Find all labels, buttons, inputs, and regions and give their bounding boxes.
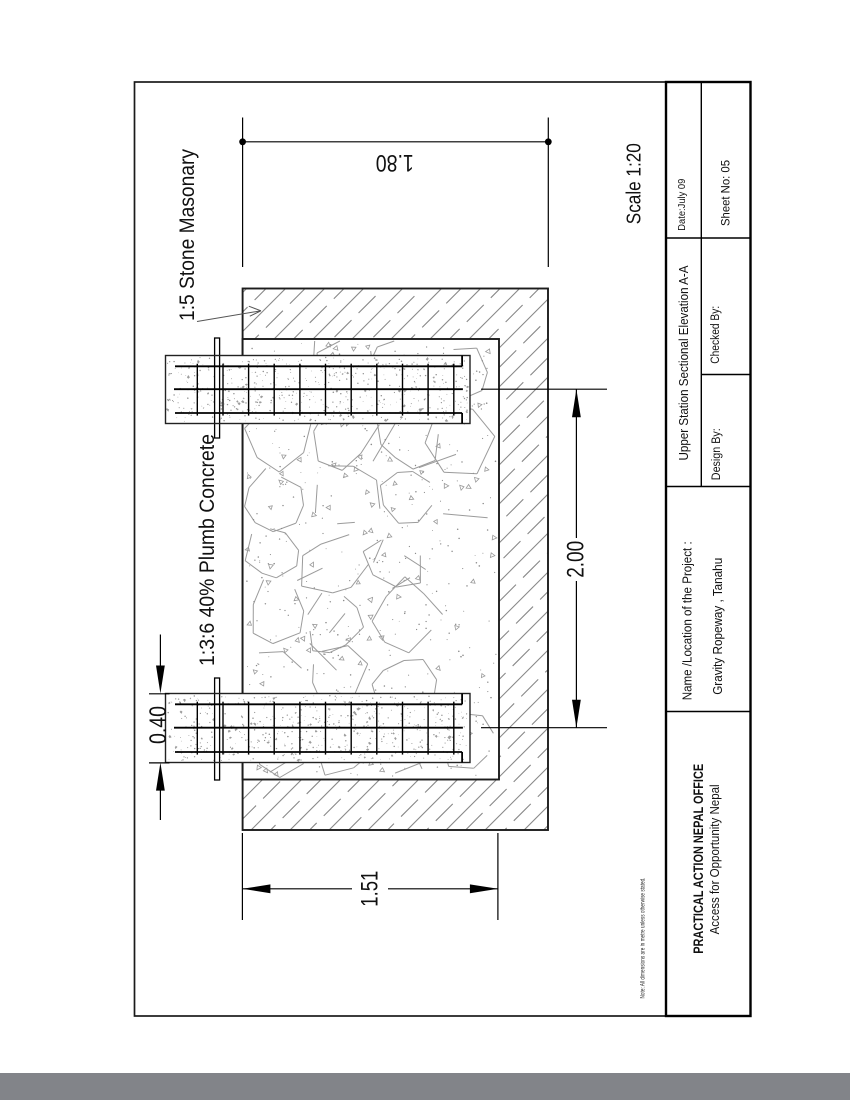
svg-text:Note: All dimensions are in me: Note: All dimensions are in metre unless… xyxy=(640,877,647,998)
svg-text:Gravity Ropeway , Tanahu: Gravity Ropeway , Tanahu xyxy=(711,558,725,695)
svg-text:Date:July 09: Date:July 09 xyxy=(676,179,688,231)
svg-text:1.80: 1.80 xyxy=(376,149,414,176)
svg-text:0.40: 0.40 xyxy=(145,706,172,744)
svg-text:2.00: 2.00 xyxy=(562,541,589,578)
svg-text:1.51: 1.51 xyxy=(357,871,384,907)
svg-text:Design By:: Design By: xyxy=(711,428,723,480)
svg-text:Access for Opportunity Nepal: Access for Opportunity Nepal xyxy=(707,784,722,934)
svg-text:Name /Location of the Project: Name /Location of the Project : xyxy=(681,541,695,700)
svg-text:1:3:6 40% Plumb Concrete: 1:3:6 40% Plumb Concrete xyxy=(195,434,219,666)
svg-text:Sheet No: 05: Sheet No: 05 xyxy=(718,160,732,226)
svg-text:Scale 1:20: Scale 1:20 xyxy=(624,143,646,224)
svg-text:Checked By:: Checked By: xyxy=(710,306,722,364)
svg-text:1:5 Stone Masonary: 1:5 Stone Masonary xyxy=(175,149,199,321)
svg-text:Upper Station Sectional Elevat: Upper Station Sectional Elevation A-A xyxy=(677,265,691,461)
svg-text:PRACTICAL ACTION NEPAL OFFICE: PRACTICAL ACTION NEPAL OFFICE xyxy=(691,764,706,954)
